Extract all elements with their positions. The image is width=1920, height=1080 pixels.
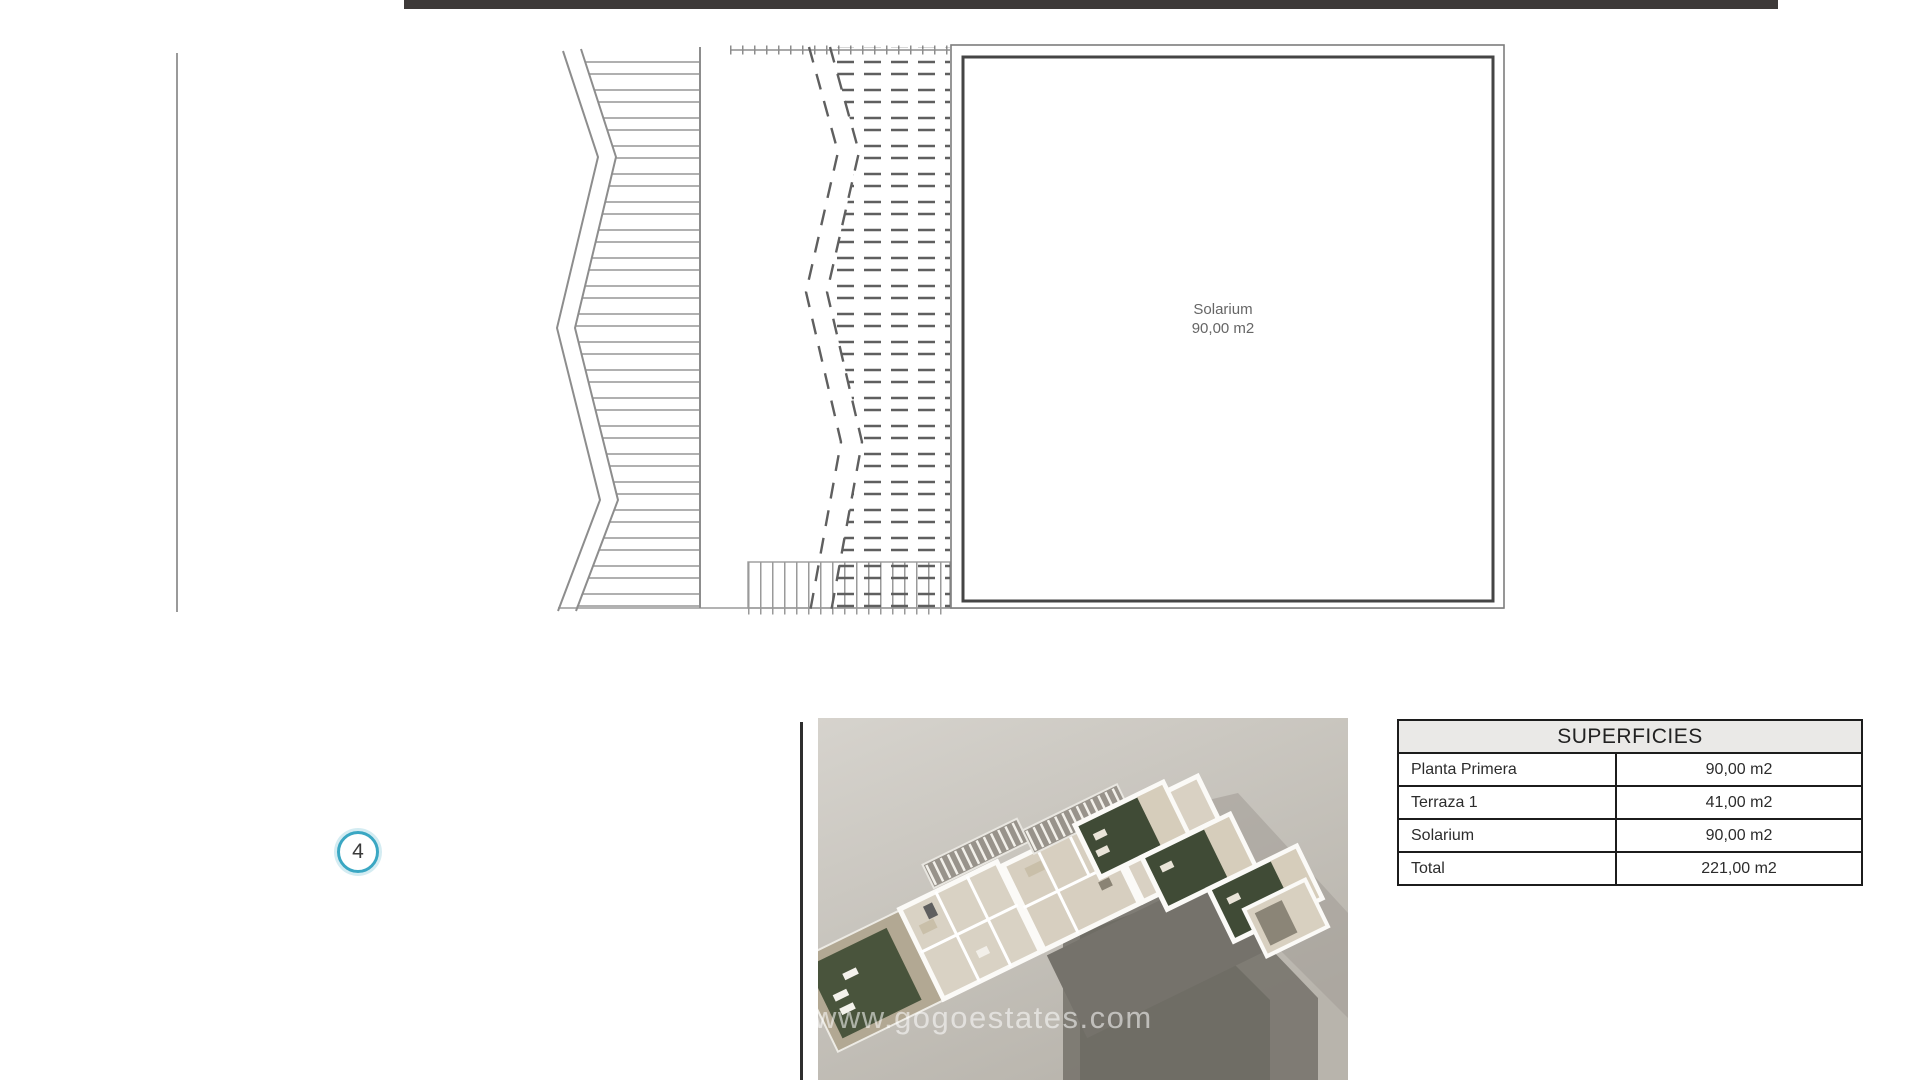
sheet-number-badge: 4 bbox=[337, 831, 379, 873]
table-row: Solarium 90,00 m2 bbox=[1399, 820, 1861, 853]
section-divider-line bbox=[800, 722, 803, 1080]
solarium-square: Solarium 90,00 m2 bbox=[951, 45, 1504, 608]
table-row: Planta Primera 90,00 m2 bbox=[1399, 754, 1861, 787]
row-label: Total bbox=[1399, 853, 1617, 884]
row-value: 41,00 m2 bbox=[1617, 787, 1861, 818]
watermark-text: www.gogoestates.com bbox=[818, 1000, 1153, 1035]
render-3d-image: www.gogoestates.com bbox=[818, 718, 1348, 1080]
dashed-roof-overhang bbox=[806, 47, 950, 612]
roof-hatch-left bbox=[557, 47, 700, 611]
table-row: Terraza 1 41,00 m2 bbox=[1399, 787, 1861, 820]
row-label: Planta Primera bbox=[1399, 754, 1617, 785]
row-label: Solarium bbox=[1399, 820, 1617, 851]
sheet-number: 4 bbox=[352, 840, 364, 864]
row-value: 221,00 m2 bbox=[1617, 853, 1861, 884]
table-row: Total 221,00 m2 bbox=[1399, 853, 1861, 884]
row-value: 90,00 m2 bbox=[1617, 820, 1861, 851]
solarium-area-label: 90,00 m2 bbox=[1192, 320, 1255, 337]
table-title: SUPERFICIES bbox=[1557, 725, 1703, 748]
row-value: 90,00 m2 bbox=[1617, 754, 1861, 785]
solarium-room-label: Solarium bbox=[1193, 301, 1252, 318]
row-label: Terraza 1 bbox=[1399, 787, 1617, 818]
roof-plan-drawing: Solarium 90,00 m2 bbox=[0, 0, 1920, 660]
table-header: SUPERFICIES bbox=[1399, 721, 1861, 754]
brochure-page: Solarium 90,00 m2 4 bbox=[0, 0, 1920, 1080]
superficies-table: SUPERFICIES Planta Primera 90,00 m2 Terr… bbox=[1397, 719, 1863, 886]
